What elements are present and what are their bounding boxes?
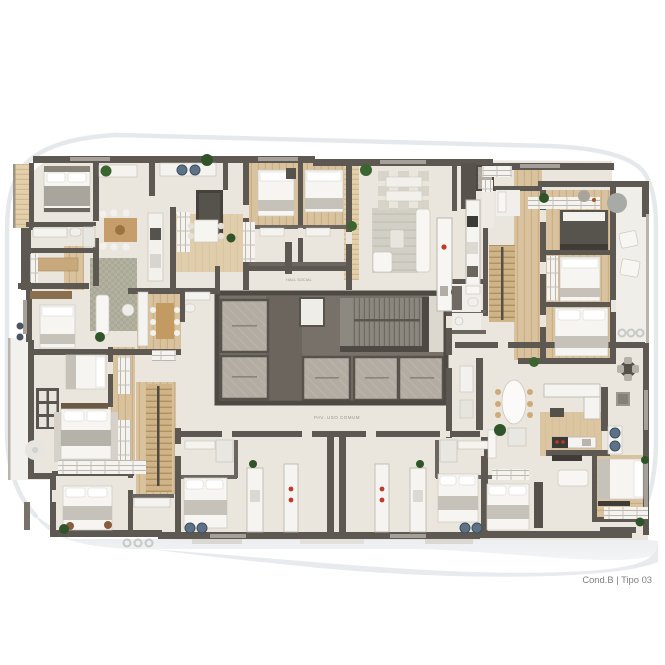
svg-text:PAV. USO COMUM: PAV. USO COMUM bbox=[314, 415, 360, 420]
svg-text:Cond.B | Tipo 03: Cond.B | Tipo 03 bbox=[582, 574, 652, 585]
svg-text:HALL SOCIAL: HALL SOCIAL bbox=[286, 277, 312, 282]
